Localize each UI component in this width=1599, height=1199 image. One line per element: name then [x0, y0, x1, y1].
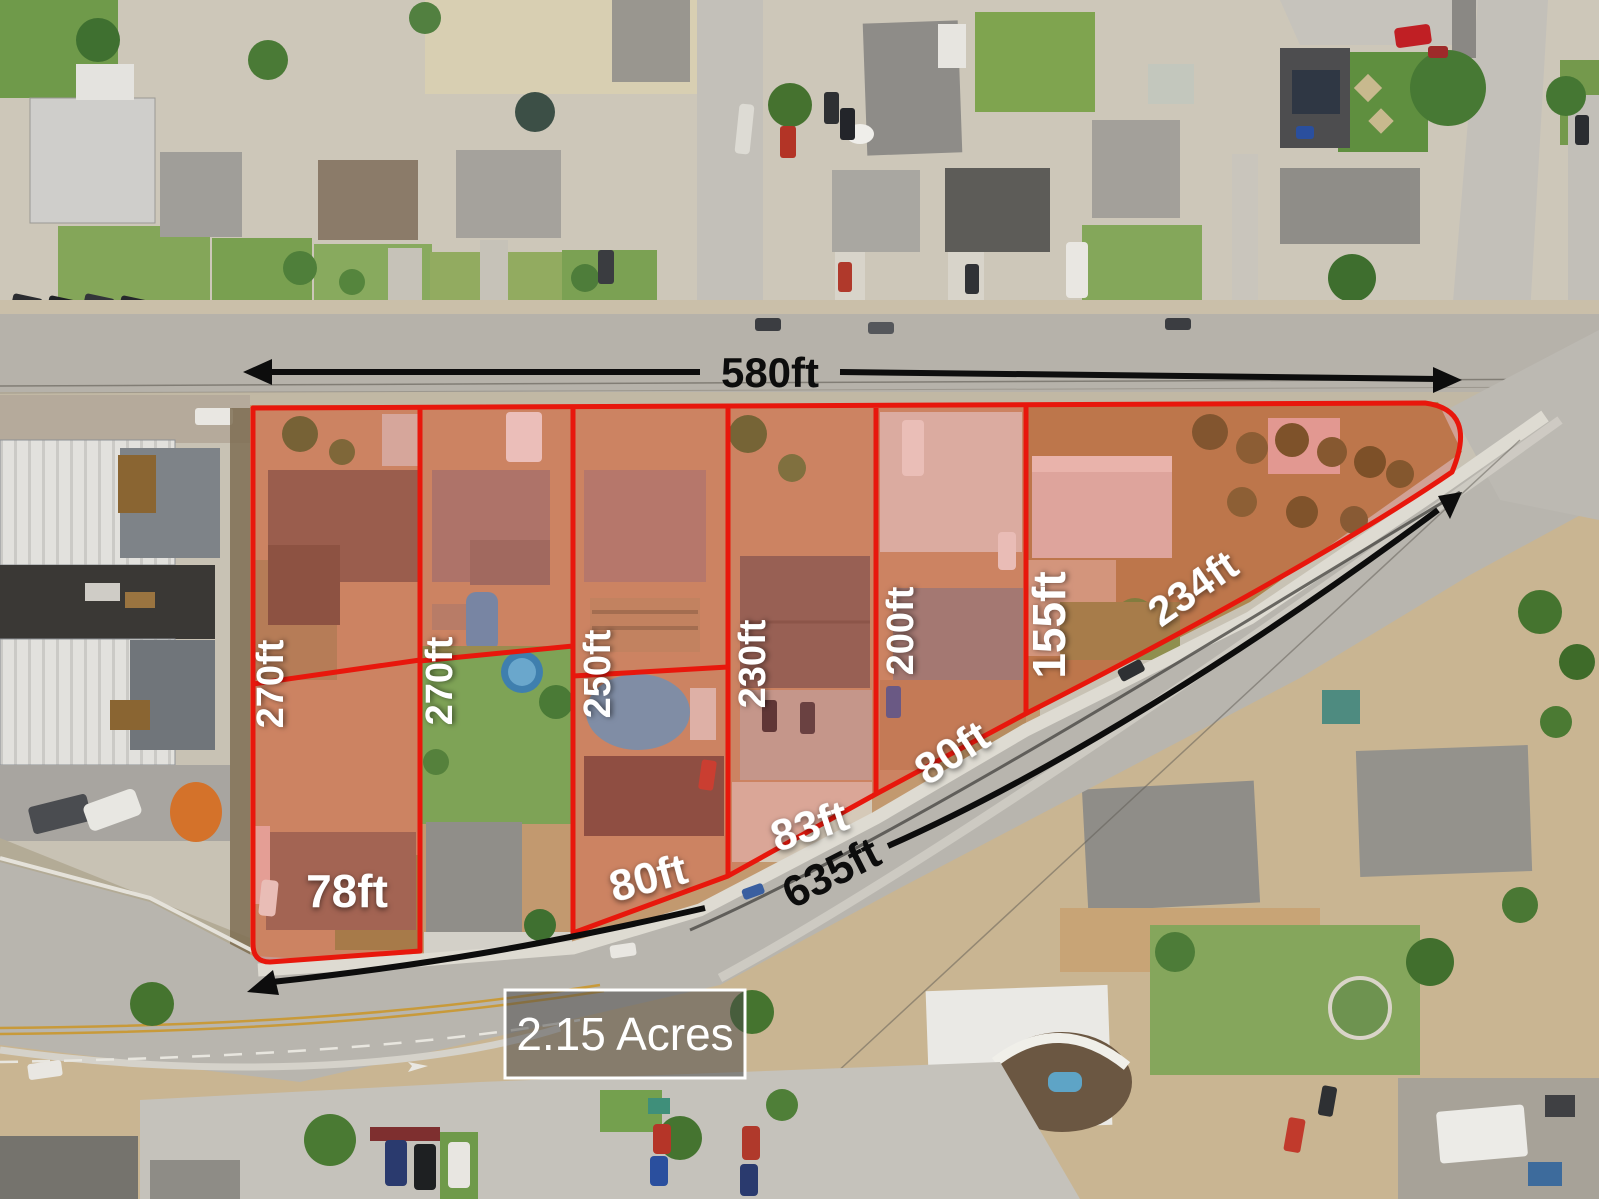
tree	[409, 2, 441, 34]
orange-tarp	[170, 782, 222, 842]
car	[598, 250, 614, 284]
house-roof	[612, 0, 690, 82]
tree	[539, 685, 573, 719]
blue-car	[1296, 126, 1314, 139]
tree	[1559, 644, 1595, 680]
tree	[1406, 938, 1454, 986]
car	[755, 318, 781, 331]
junk	[1545, 1095, 1575, 1117]
top-lane	[1280, 0, 1478, 45]
house-roof	[1082, 781, 1260, 912]
area-badge: 2.15 Acres	[505, 990, 745, 1078]
tree	[1518, 590, 1562, 634]
street-shoulder-north	[0, 300, 1599, 316]
depth-label-6: 155ft	[1023, 571, 1075, 678]
house-roof	[945, 168, 1050, 252]
depth-label-5: 200ft	[880, 586, 922, 675]
house-roof	[1280, 168, 1420, 244]
car	[965, 264, 979, 294]
house-roof	[0, 1136, 138, 1199]
depth-label-3: 250ft	[577, 629, 619, 718]
white-truck	[1066, 242, 1088, 298]
tree	[766, 1089, 798, 1121]
tree	[76, 18, 120, 62]
top-neighborhood	[0, 0, 1599, 336]
driveway	[1232, 154, 1258, 306]
tree	[1540, 706, 1572, 738]
house-roof	[1356, 745, 1532, 877]
red-car	[1428, 46, 1448, 58]
shed-roof	[76, 64, 134, 100]
teal-shed	[1322, 690, 1360, 724]
debris	[85, 583, 120, 601]
tree	[1155, 932, 1195, 972]
lawn	[975, 12, 1095, 112]
tree	[571, 264, 599, 292]
car	[1575, 115, 1589, 145]
car	[1165, 318, 1191, 330]
white-car	[195, 408, 233, 425]
white-trailer	[1436, 1104, 1528, 1163]
spa-pool	[1048, 1072, 1082, 1092]
red-hedge	[370, 1127, 440, 1141]
red-car	[780, 126, 796, 158]
house-roof	[318, 160, 418, 240]
house-roof	[1452, 0, 1476, 58]
driveway	[480, 240, 508, 310]
tree	[248, 40, 288, 80]
red-car	[742, 1126, 760, 1160]
hedge	[768, 83, 812, 127]
wood-panels	[110, 700, 150, 730]
tree	[423, 749, 449, 775]
warehouse-roof-dark	[130, 640, 215, 750]
greenhouse-roof	[1148, 64, 1194, 104]
excluded-house-roof	[426, 822, 522, 934]
blue-car	[740, 1164, 758, 1196]
depth-label-1: 270ft	[250, 639, 292, 728]
lawn	[1082, 225, 1202, 305]
house-roof	[832, 170, 920, 252]
solar-panels	[1292, 70, 1340, 114]
house-roof	[456, 150, 561, 238]
garden-circle	[1330, 978, 1390, 1038]
blue-tarp	[1528, 1162, 1562, 1186]
house-roof	[150, 1160, 240, 1199]
wood-panels	[118, 455, 156, 513]
car	[868, 322, 894, 334]
tree	[283, 251, 317, 285]
blue-car	[650, 1156, 668, 1186]
tree	[1328, 254, 1376, 302]
car	[824, 92, 839, 124]
tree	[1546, 76, 1586, 116]
frontage-label-1: 78ft	[306, 865, 388, 917]
trampoline-mat	[508, 658, 536, 686]
pool-round	[515, 92, 555, 132]
lawn	[58, 226, 210, 306]
tree	[1502, 887, 1538, 923]
large-tree	[1410, 50, 1486, 126]
house-roof	[160, 152, 242, 237]
house-roof	[30, 98, 155, 223]
blue-car	[385, 1140, 407, 1186]
tree	[130, 982, 174, 1026]
teal-tent	[648, 1098, 670, 1114]
depth-label-4: 230ft	[732, 619, 774, 708]
tree	[339, 269, 365, 295]
garage-roof	[938, 24, 966, 68]
red-car	[838, 262, 852, 292]
scene-svg: 580ft 635ft 270ft 270ft 250ft 230ft 200f…	[0, 0, 1599, 1199]
side-street-vertical	[697, 0, 763, 316]
tree	[524, 909, 556, 941]
white-car	[448, 1142, 470, 1188]
area-badge-label: 2.15 Acres	[516, 1008, 733, 1060]
tree	[304, 1114, 356, 1166]
red-car	[653, 1124, 671, 1154]
construction-strip	[0, 565, 215, 639]
top-arrow-label: 580ft	[721, 349, 819, 396]
depth-label-2: 270ft	[419, 636, 461, 725]
crates	[125, 592, 155, 608]
house-roof	[1092, 120, 1180, 218]
fence-line	[230, 408, 250, 956]
car	[840, 108, 855, 140]
aerial-listing-photo: 580ft 635ft 270ft 270ft 250ft 230ft 200f…	[0, 0, 1599, 1199]
car	[414, 1144, 436, 1190]
